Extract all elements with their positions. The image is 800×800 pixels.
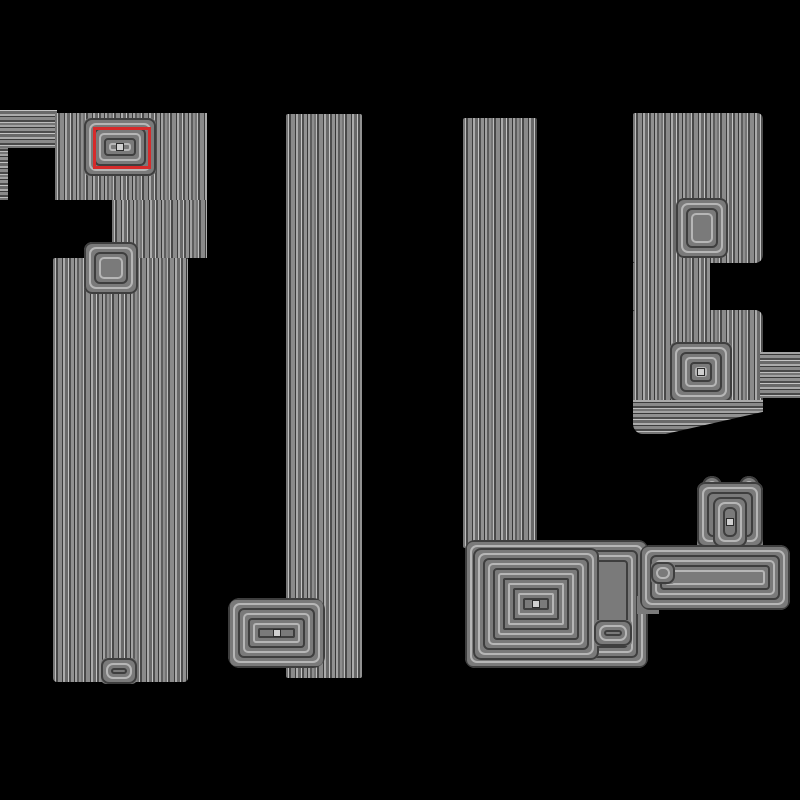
column1-main <box>53 258 188 682</box>
column2-foot-contours <box>228 598 325 668</box>
column4-neck <box>633 263 710 310</box>
bottom-region-square-center <box>532 600 540 608</box>
column2 <box>286 114 362 678</box>
left-edge-sliver <box>0 148 8 200</box>
tee-bar-node-ring <box>656 567 670 579</box>
column1-notch-contours <box>84 242 138 294</box>
column4-vee-contours <box>676 198 728 258</box>
tee-stem-core <box>713 497 747 547</box>
column4-vee-contours-ring <box>691 213 713 243</box>
column4-node-contours-center <box>697 368 705 376</box>
column4-right-protrusion <box>760 352 800 398</box>
column1-notch-contours-ring <box>99 257 123 279</box>
tee-stem-core-center <box>726 518 734 526</box>
column1-bottom-node-ring <box>111 668 127 674</box>
tee-bar-node <box>651 562 675 584</box>
bottom-region-smallbox-ring <box>604 630 622 636</box>
left-arm-contours <box>0 110 57 148</box>
column4-node-contours <box>670 342 732 402</box>
tee-bar-frame-ring <box>665 570 765 585</box>
column2-foot-contours-center <box>273 629 281 637</box>
column3 <box>463 118 537 548</box>
column4-taper <box>633 400 763 434</box>
bottom-region-square <box>473 548 599 660</box>
bottom-region-smallbox <box>594 620 632 646</box>
column1-bottom-node <box>101 658 137 684</box>
artwork-canvas <box>0 0 800 800</box>
selection-box[interactable] <box>93 127 151 169</box>
